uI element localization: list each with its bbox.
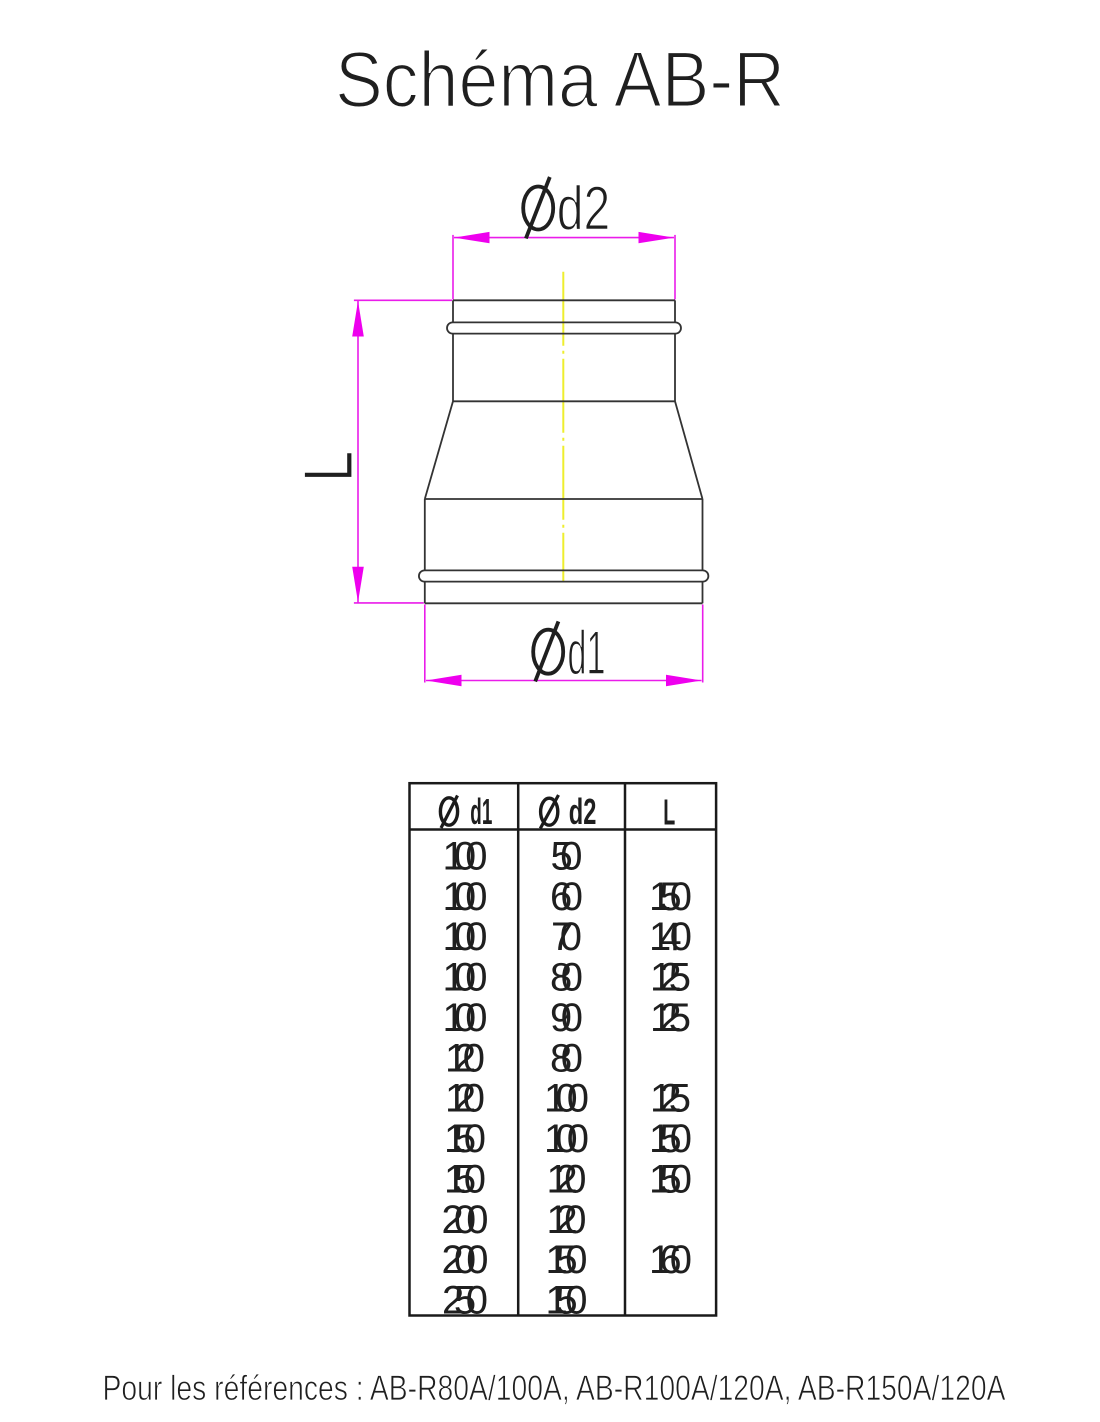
svg-text:d2: d2 xyxy=(569,791,597,832)
svg-text:120: 120 xyxy=(547,1198,587,1242)
svg-text:120: 120 xyxy=(445,1077,485,1121)
svg-text:125: 125 xyxy=(650,956,691,1000)
svg-text:150: 150 xyxy=(649,1117,692,1161)
svg-text:90: 90 xyxy=(550,996,583,1040)
svg-text:100: 100 xyxy=(544,1077,589,1121)
svg-text:150: 150 xyxy=(546,1238,588,1282)
svg-text:Schéma AB-R: Schéma AB-R xyxy=(335,34,785,123)
svg-text:d1: d1 xyxy=(568,619,606,688)
svg-text:160: 160 xyxy=(649,1238,692,1282)
svg-text:100: 100 xyxy=(544,1117,589,1161)
svg-text:100: 100 xyxy=(443,875,488,919)
svg-text:150: 150 xyxy=(649,1157,692,1201)
svg-text:100: 100 xyxy=(443,996,488,1040)
svg-text:100: 100 xyxy=(443,956,488,1000)
svg-text:80: 80 xyxy=(550,956,583,1000)
svg-text:120: 120 xyxy=(445,1036,485,1080)
svg-text:d2: d2 xyxy=(557,175,611,244)
svg-text:60: 60 xyxy=(550,875,583,919)
svg-text:125: 125 xyxy=(650,996,691,1040)
svg-text:150: 150 xyxy=(649,875,692,919)
svg-text:100: 100 xyxy=(443,915,488,959)
svg-text:140: 140 xyxy=(649,915,692,959)
svg-text:125: 125 xyxy=(650,1077,691,1121)
svg-text:120: 120 xyxy=(547,1157,587,1201)
svg-text:70: 70 xyxy=(551,915,582,959)
svg-text:200: 200 xyxy=(442,1198,489,1242)
svg-text:d1: d1 xyxy=(470,791,492,832)
svg-text:100: 100 xyxy=(443,835,488,879)
svg-text:150: 150 xyxy=(444,1117,486,1161)
svg-text:L: L xyxy=(663,791,675,832)
svg-text:80: 80 xyxy=(550,1036,583,1080)
svg-text:50: 50 xyxy=(551,835,583,879)
svg-text:200: 200 xyxy=(442,1238,489,1282)
svg-text:250: 250 xyxy=(442,1279,488,1323)
svg-text:150: 150 xyxy=(546,1279,588,1323)
svg-text:150: 150 xyxy=(444,1157,486,1201)
svg-text:Pour les références : AB-R80A/: Pour les références : AB-R80A/100A, AB-R… xyxy=(103,1369,1007,1408)
